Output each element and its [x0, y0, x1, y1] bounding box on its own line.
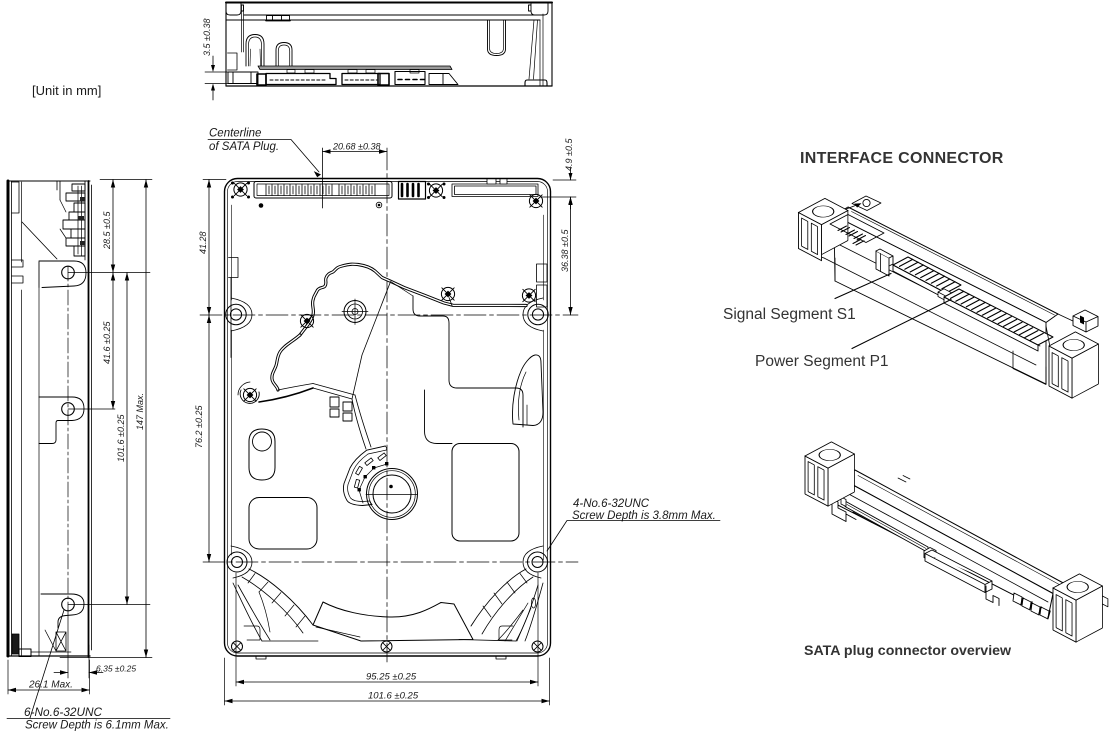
- svg-text:Power Segment P1: Power Segment P1: [755, 353, 889, 370]
- svg-text:101.6 ±0.25: 101.6 ±0.25: [116, 414, 126, 462]
- svg-text:28.5 ±0.5: 28.5 ±0.5: [102, 211, 112, 250]
- svg-text:of SATA Plug.: of SATA Plug.: [209, 141, 279, 153]
- svg-text:SATA plug connector overview: SATA plug connector overview: [804, 643, 1012, 659]
- svg-text:4-No.6-32UNC: 4-No.6-32UNC: [573, 498, 650, 510]
- svg-text:6-No.6-32UNC: 6-No.6-32UNC: [24, 705, 102, 719]
- svg-text:147 Max.: 147 Max.: [135, 393, 145, 430]
- svg-text:76.2 ±0.25: 76.2 ±0.25: [194, 405, 204, 448]
- svg-text:INTERFACE CONNECTOR: INTERFACE CONNECTOR: [800, 150, 1004, 167]
- svg-text:[Unit in mm]: [Unit in mm]: [32, 83, 101, 98]
- svg-text:Screw Depth is 6.1mm Max.: Screw Depth is 6.1mm Max.: [25, 720, 169, 732]
- svg-text:95.25 ±0.25: 95.25 ±0.25: [366, 672, 417, 683]
- svg-text:Signal Segment S1: Signal Segment S1: [723, 306, 856, 323]
- svg-text:4.9 ±0.5: 4.9 ±0.5: [564, 138, 574, 171]
- svg-text:6.35 ±0.25: 6.35 ±0.25: [96, 664, 136, 674]
- svg-text:41.6 ±0.25: 41.6 ±0.25: [102, 321, 112, 364]
- svg-text:36.38 ±0.5: 36.38 ±0.5: [560, 229, 570, 272]
- svg-text:101.6 ±0.25: 101.6 ±0.25: [368, 691, 419, 702]
- svg-text:3.5 ±0.38: 3.5 ±0.38: [202, 19, 212, 56]
- svg-text:41.28: 41.28: [198, 231, 208, 254]
- svg-text:26.1 Max.: 26.1 Max.: [28, 680, 73, 691]
- svg-text:Centerline: Centerline: [209, 128, 261, 140]
- svg-text:20.68 ±0.38: 20.68 ±0.38: [332, 142, 380, 152]
